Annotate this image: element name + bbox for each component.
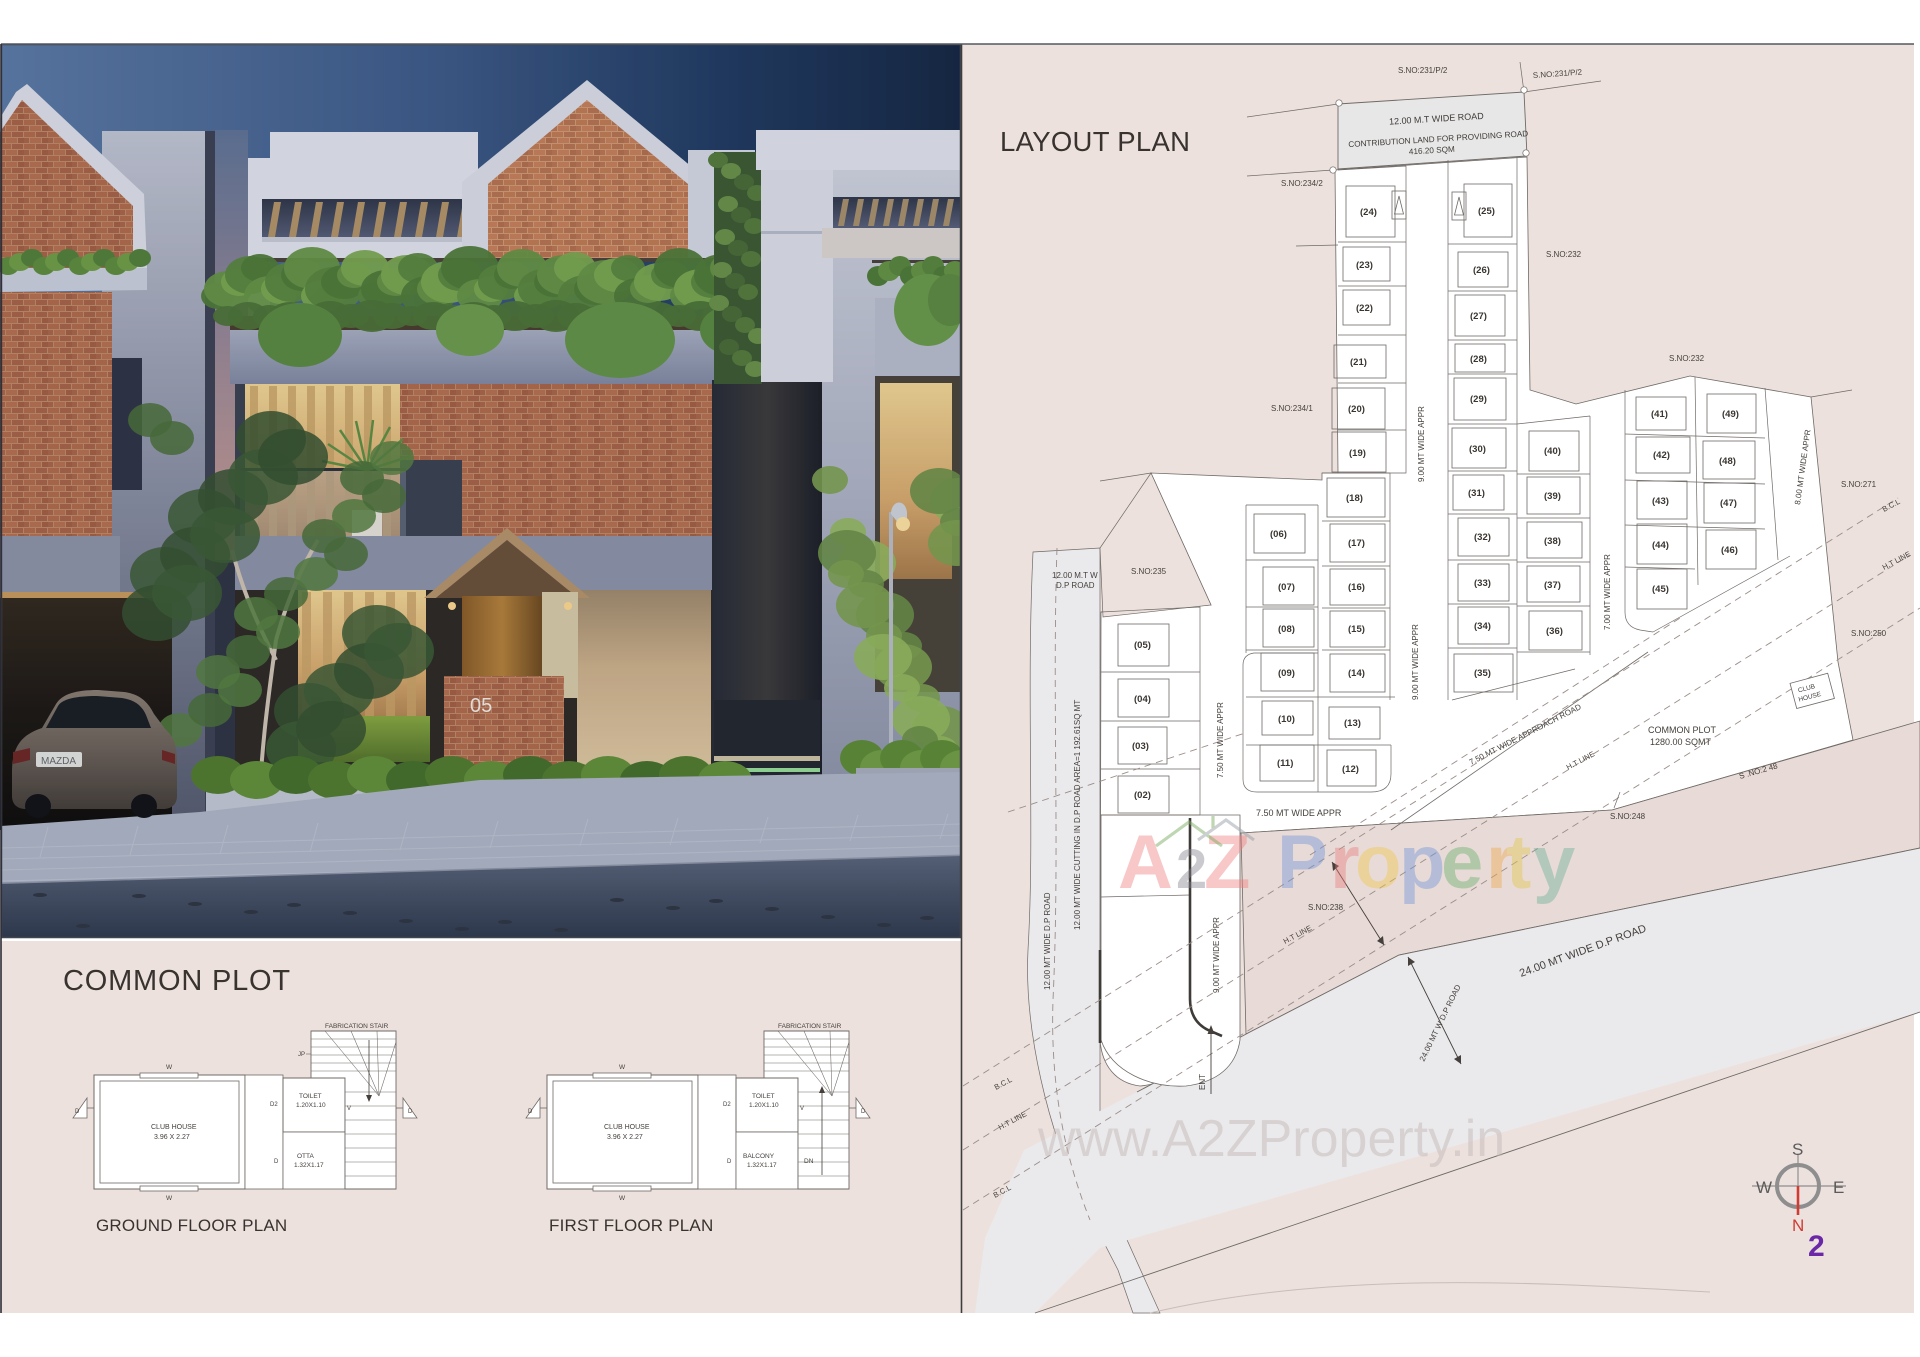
svg-text:W: W (619, 1195, 626, 1202)
svg-text:(46): (46) (1721, 545, 1738, 556)
svg-text:W: W (166, 1195, 173, 1202)
svg-text:S.NO:248: S.NO:248 (1610, 812, 1646, 821)
svg-text:BALCONY: BALCONY (743, 1153, 775, 1160)
svg-text:A: A (1118, 820, 1173, 905)
svg-text:12.00 MT WIDE D.P ROAD: 12.00 MT WIDE D.P ROAD (1043, 892, 1052, 990)
svg-text:V: V (800, 1106, 804, 1112)
svg-text:(45): (45) (1652, 584, 1669, 595)
svg-text:(38): (38) (1544, 536, 1561, 547)
svg-text:7.50 MT WIDE APPR: 7.50 MT WIDE APPR (1256, 808, 1342, 818)
svg-text:D: D (75, 1109, 80, 1115)
svg-text:7.50 MT WIDE APPR: 7.50 MT WIDE APPR (1216, 702, 1225, 778)
svg-text:D: D (727, 1159, 732, 1165)
svg-text:(19): (19) (1349, 448, 1366, 459)
svg-text:(06): (06) (1270, 529, 1287, 540)
svg-text:1280.00 SQMT: 1280.00 SQMT (1650, 737, 1712, 747)
svg-text:(28): (28) (1470, 354, 1487, 365)
svg-text:12.00 M.T W: 12.00 M.T W (1052, 571, 1098, 580)
svg-text:D2: D2 (723, 1102, 731, 1108)
svg-text:(17): (17) (1348, 538, 1365, 549)
svg-text:D: D (408, 1109, 413, 1115)
svg-text:V: V (347, 1106, 351, 1112)
svg-text:(15): (15) (1348, 624, 1365, 635)
svg-text:1.20X1.10: 1.20X1.10 (749, 1102, 779, 1109)
svg-text:2: 2 (1808, 1230, 1825, 1263)
svg-text:D: D (861, 1109, 866, 1115)
svg-text:S.NO:234/2: S.NO:234/2 (1281, 179, 1323, 188)
svg-text:9.00 MT WIDE APPR: 9.00 MT WIDE APPR (1212, 917, 1221, 993)
svg-text:S.NO:250: S.NO:250 (1851, 629, 1887, 638)
svg-text:S.NO:234/1: S.NO:234/1 (1271, 404, 1313, 413)
svg-text:(09): (09) (1278, 668, 1295, 679)
svg-text:t: t (1506, 820, 1531, 905)
svg-text:(25): (25) (1478, 206, 1495, 217)
svg-text:(34): (34) (1474, 621, 1491, 632)
svg-text:FABRICATION STAIR: FABRICATION STAIR (325, 1023, 389, 1030)
svg-text:P: P (1277, 820, 1328, 905)
svg-text:(36): (36) (1546, 626, 1563, 637)
svg-text:(49): (49) (1722, 409, 1739, 420)
svg-text:7.00 MT WIDE APPR: 7.00 MT WIDE APPR (1603, 554, 1612, 630)
svg-text:1.32X1.17: 1.32X1.17 (747, 1162, 777, 1169)
svg-text:1.20X1.10: 1.20X1.10 (296, 1102, 326, 1109)
svg-text:(42): (42) (1653, 450, 1670, 461)
svg-text:W: W (619, 1064, 626, 1071)
svg-text:(13): (13) (1344, 718, 1361, 729)
svg-text:y: y (1533, 820, 1575, 905)
svg-text:D: D (528, 1109, 533, 1115)
svg-text:DN: DN (804, 1158, 814, 1165)
svg-text:(21): (21) (1350, 357, 1367, 368)
svg-text:(07): (07) (1278, 582, 1295, 593)
svg-text:(14): (14) (1348, 668, 1365, 679)
svg-text:(16): (16) (1348, 582, 1365, 593)
svg-text:S.NO:235: S.NO:235 (1131, 567, 1167, 576)
svg-text:LAYOUT PLAN: LAYOUT PLAN (1000, 126, 1190, 157)
svg-text:D.P ROAD: D.P ROAD (1056, 581, 1095, 590)
svg-text:OTTA: OTTA (297, 1153, 315, 1160)
svg-text:e: e (1441, 820, 1483, 905)
svg-text:TOILET: TOILET (752, 1093, 775, 1100)
svg-text:S.NO:231/P/2: S.NO:231/P/2 (1398, 66, 1448, 75)
svg-text:(22): (22) (1356, 303, 1373, 314)
svg-text:JP: JP (298, 1052, 305, 1058)
svg-text:(43): (43) (1652, 496, 1669, 507)
svg-text:E: E (1833, 1178, 1844, 1197)
svg-text:FABRICATION STAIR: FABRICATION STAIR (778, 1023, 842, 1030)
svg-text:S.NO:232: S.NO:232 (1669, 354, 1705, 363)
svg-text:(03): (03) (1132, 741, 1149, 752)
svg-text:(31): (31) (1468, 488, 1485, 499)
svg-text:9.00 MT WIDE APPR: 9.00 MT WIDE APPR (1417, 406, 1426, 482)
svg-text:(05): (05) (1134, 640, 1151, 651)
svg-text:(29): (29) (1470, 394, 1487, 405)
svg-text:TOILET: TOILET (299, 1093, 322, 1100)
svg-text:S: S (1792, 1140, 1803, 1159)
svg-text:(11): (11) (1277, 758, 1293, 769)
svg-text:D: D (274, 1159, 279, 1165)
svg-text:(02): (02) (1134, 790, 1151, 801)
svg-text:(48): (48) (1719, 456, 1736, 467)
svg-text:COMMON PLOT: COMMON PLOT (1648, 725, 1717, 735)
svg-text:(40): (40) (1544, 446, 1561, 457)
svg-text:(12): (12) (1342, 764, 1359, 775)
svg-text:1.32X1.17: 1.32X1.17 (294, 1162, 324, 1169)
svg-text:www.A2ZProperty.in: www.A2ZProperty.in (1037, 1110, 1505, 1168)
svg-text:(30): (30) (1469, 444, 1486, 455)
svg-text:COMMON PLOT: COMMON PLOT (63, 965, 291, 997)
svg-text:(10): (10) (1278, 714, 1295, 725)
svg-text:12.00 MT WIDE CUTTING IN D.P R: 12.00 MT WIDE CUTTING IN D.P ROAD AREA=1… (1073, 700, 1082, 930)
svg-text:S.NO:232: S.NO:232 (1546, 250, 1582, 259)
svg-text:(47): (47) (1720, 498, 1737, 509)
svg-text:9.00 MT WIDE APPR: 9.00 MT WIDE APPR (1411, 624, 1420, 700)
svg-text:(27): (27) (1470, 311, 1487, 322)
svg-text:(37): (37) (1544, 580, 1561, 591)
svg-text:(33): (33) (1474, 578, 1491, 589)
svg-text:W: W (166, 1064, 173, 1071)
svg-text:GROUND FLOOR PLAN: GROUND FLOOR PLAN (96, 1216, 287, 1235)
svg-text:D2: D2 (270, 1102, 278, 1108)
svg-text:W: W (1756, 1178, 1772, 1197)
svg-text:(26): (26) (1473, 265, 1490, 276)
svg-text:(20): (20) (1348, 404, 1365, 415)
svg-text:CLUB HOUSE: CLUB HOUSE (151, 1124, 197, 1131)
svg-text:(18): (18) (1346, 493, 1363, 504)
svg-text:3.96 X 2.27: 3.96 X 2.27 (607, 1134, 643, 1141)
svg-text:(32): (32) (1474, 532, 1491, 543)
svg-text:3.96 X 2.27: 3.96 X 2.27 (154, 1134, 190, 1141)
svg-text:N: N (1792, 1216, 1804, 1235)
svg-text:(23): (23) (1356, 260, 1373, 271)
svg-text:CLUB HOUSE: CLUB HOUSE (604, 1124, 650, 1131)
svg-text:FIRST FLOOR PLAN: FIRST FLOOR PLAN (549, 1216, 713, 1235)
svg-text:p: p (1399, 820, 1445, 905)
svg-text:(35): (35) (1474, 668, 1491, 679)
svg-text:(44): (44) (1652, 540, 1669, 551)
svg-text:(39): (39) (1544, 491, 1561, 502)
svg-text:ENT: ENT (1198, 1074, 1207, 1090)
svg-text:(08): (08) (1278, 624, 1295, 635)
svg-text:S.NO:271: S.NO:271 (1841, 480, 1877, 489)
svg-text:(24): (24) (1360, 207, 1377, 218)
svg-text:o: o (1355, 820, 1401, 905)
svg-text:(04): (04) (1134, 694, 1151, 705)
svg-text:2: 2 (1176, 837, 1207, 900)
svg-text:(41): (41) (1651, 409, 1668, 420)
